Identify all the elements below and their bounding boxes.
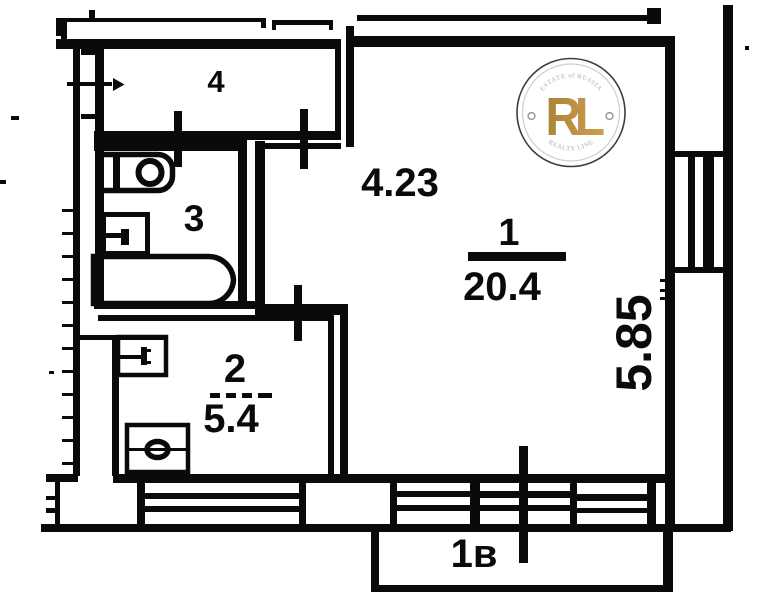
svg-text:5.4: 5.4 (203, 397, 259, 441)
svg-text:1в: 1в (451, 532, 498, 576)
svg-text:20.4: 20.4 (463, 265, 542, 309)
svg-text:RL: RL (545, 86, 604, 146)
svg-text:4: 4 (207, 64, 225, 99)
svg-text:2: 2 (224, 347, 246, 391)
svg-text:4.23: 4.23 (361, 161, 439, 205)
svg-text:3: 3 (184, 198, 205, 239)
svg-text:5.85: 5.85 (606, 294, 662, 391)
svg-text:1: 1 (498, 212, 519, 254)
